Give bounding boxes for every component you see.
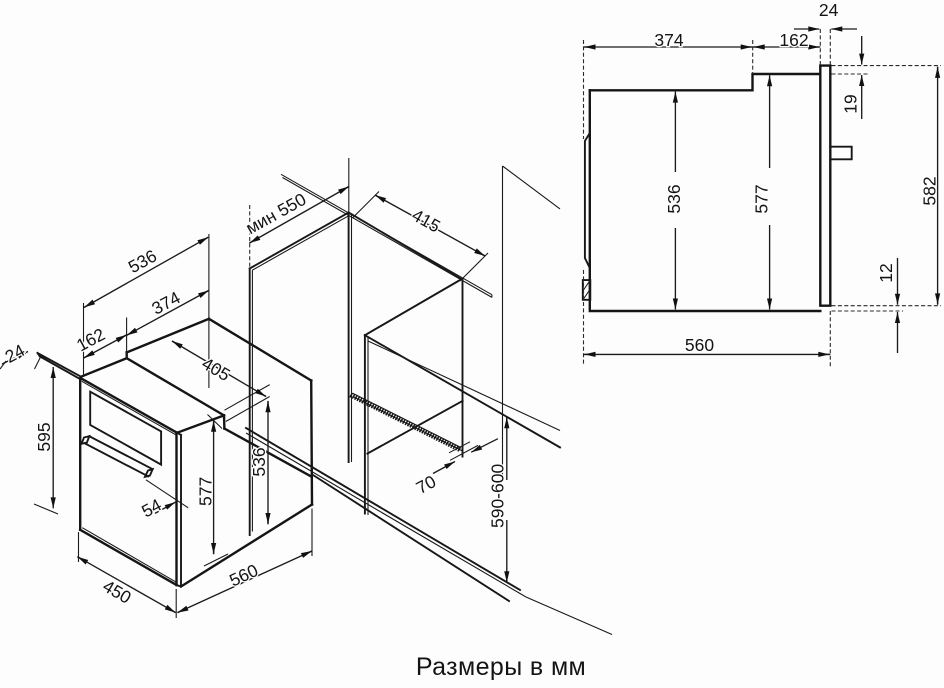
- svg-text:374: 374: [148, 287, 183, 318]
- svg-text:577: 577: [752, 184, 772, 213]
- svg-text:мин 550: мин 550: [242, 189, 309, 238]
- svg-text:54: 54: [138, 494, 165, 521]
- svg-text:70: 70: [413, 471, 440, 498]
- svg-text:577: 577: [196, 477, 216, 506]
- svg-text:162: 162: [779, 30, 808, 50]
- svg-text:415: 415: [409, 205, 444, 237]
- svg-text:450: 450: [99, 576, 135, 608]
- svg-text:595: 595: [34, 422, 54, 451]
- svg-text:19: 19: [841, 94, 861, 113]
- svg-text:536: 536: [125, 246, 160, 278]
- svg-text:Размеры в мм: Размеры в мм: [416, 653, 586, 681]
- svg-text:24: 24: [819, 0, 839, 20]
- svg-text:560: 560: [685, 335, 714, 355]
- svg-text:374: 374: [654, 30, 683, 50]
- svg-text:582: 582: [920, 176, 940, 205]
- svg-text:560: 560: [226, 560, 261, 591]
- svg-text:162: 162: [73, 324, 108, 355]
- svg-text:536: 536: [664, 184, 684, 213]
- svg-text:536: 536: [249, 447, 269, 476]
- svg-text:405: 405: [198, 353, 233, 385]
- svg-text:12: 12: [876, 263, 896, 282]
- svg-text:590-600: 590-600: [488, 464, 508, 528]
